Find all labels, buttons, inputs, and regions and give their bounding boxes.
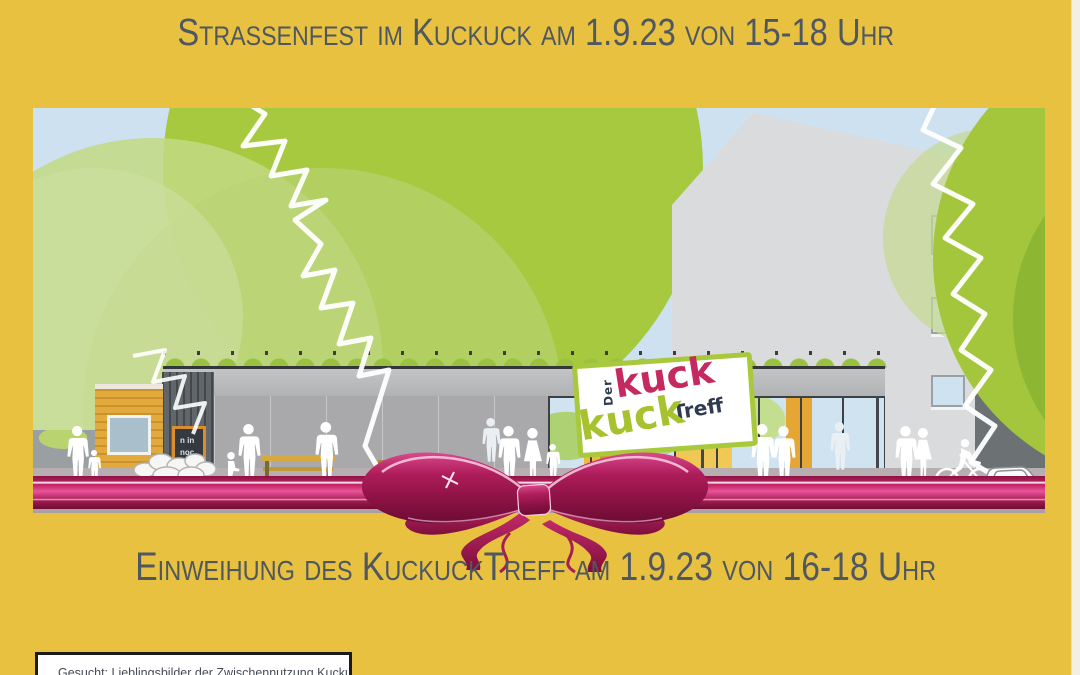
page-edge-strip	[1071, 0, 1080, 675]
info-box-text: Gesucht: Lieblingsbilder der Zwischennut…	[58, 666, 349, 675]
bottom-title-text: Einweihung des KuckuckTreff am 1.9.23 vo…	[136, 541, 937, 593]
tree-outline	[133, 350, 205, 434]
info-box: Gesucht: Lieblingsbilder der Zwischennut…	[35, 652, 352, 675]
bottom-title: Einweihung des KuckuckTreff am 1.9.23 vo…	[0, 541, 1072, 593]
tree-outline	[183, 108, 389, 480]
top-title-text: Strassenfest im Kuckuck am 1.9.23 von 15…	[178, 8, 895, 58]
top-title: Strassenfest im Kuckuck am 1.9.23 von 15…	[0, 8, 1072, 58]
poster: Strassenfest im Kuckuck am 1.9.23 von 15…	[0, 0, 1080, 675]
tree-outline	[923, 108, 1001, 480]
